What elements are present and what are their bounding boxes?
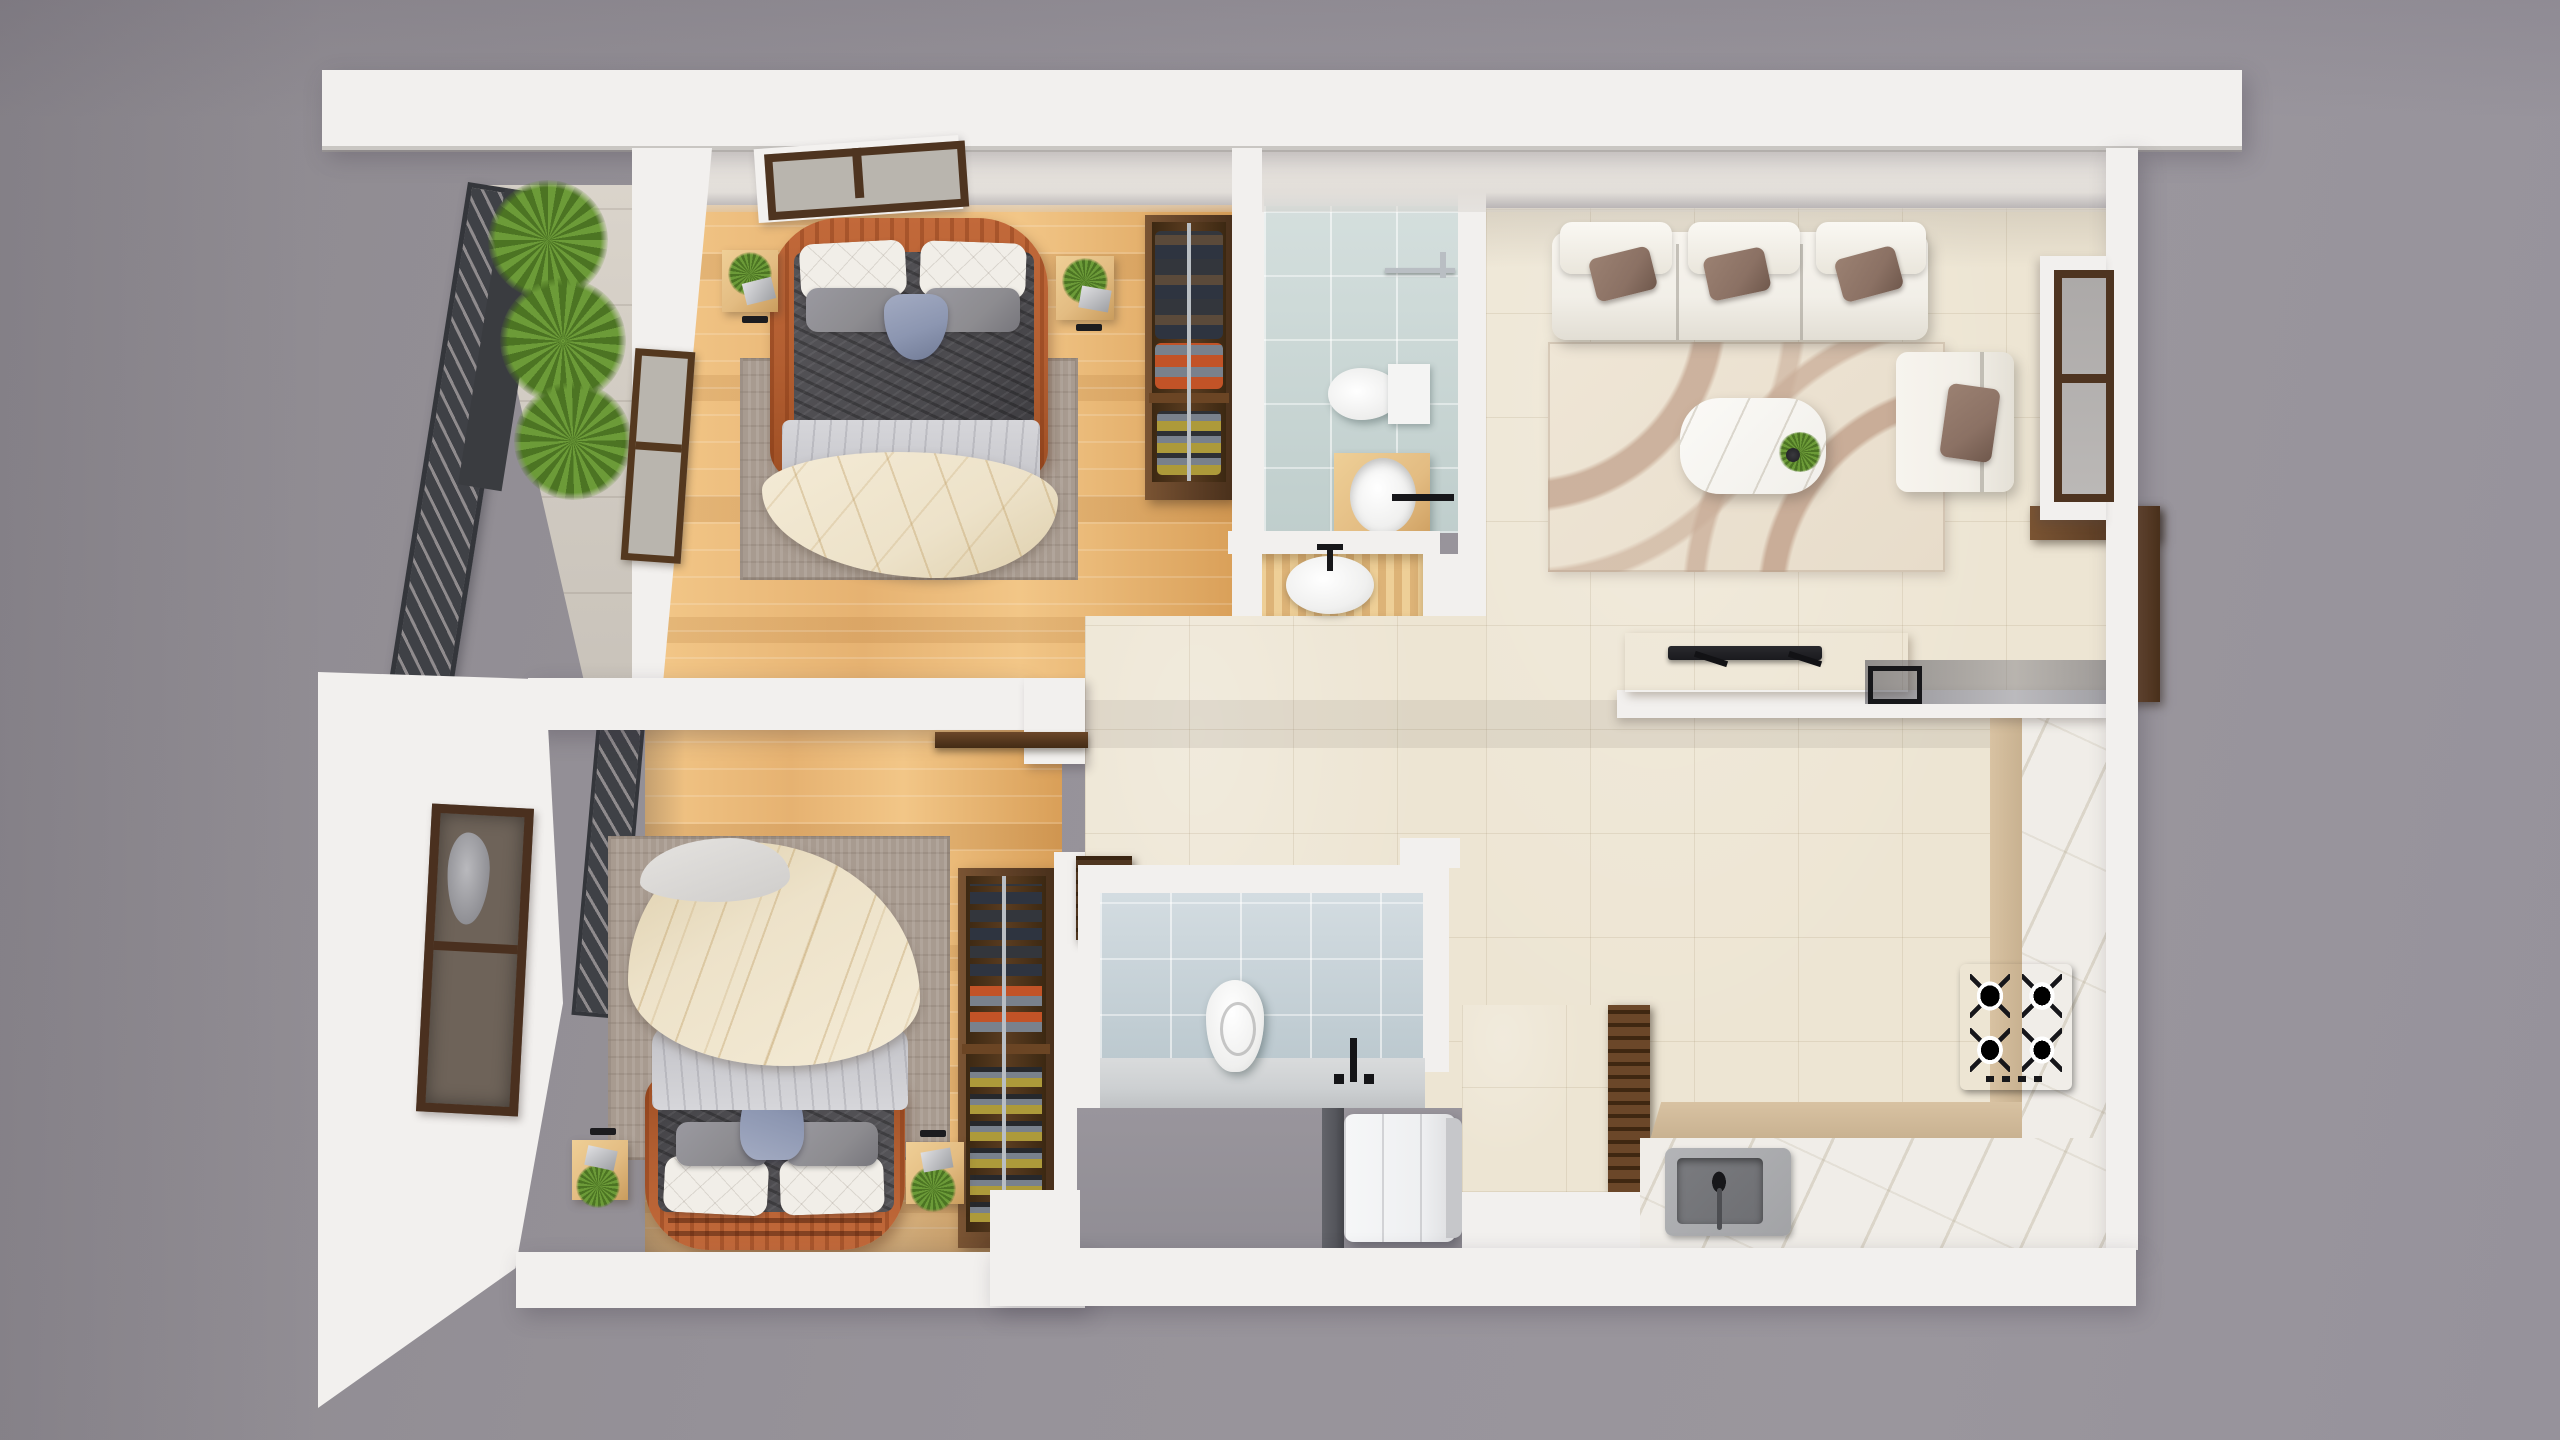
pantry-niche-floor <box>1462 1005 1608 1192</box>
wall-hook-icon <box>920 1130 946 1137</box>
right-window <box>2054 270 2114 502</box>
top-wall <box>322 70 2242 150</box>
bathroom-bottom-faucet-handles <box>1334 1074 1374 1084</box>
towel-hook-icon <box>1440 252 1446 278</box>
bathroom-bottom-counter <box>1100 1058 1425 1108</box>
bedroom-top-window-frame <box>764 141 969 221</box>
wall-hook-icon <box>1076 324 1102 331</box>
toilet-bottom-seat-line <box>1220 1002 1256 1056</box>
kitchen-faucet-hose <box>1717 1188 1722 1230</box>
right-window-rail <box>2062 374 2106 383</box>
west-window-chair-silhouette <box>445 831 492 925</box>
west-wall-window <box>416 804 534 1117</box>
nightstand-plant-icon <box>910 1166 956 1212</box>
west-window-rail <box>433 941 517 954</box>
niche-vanity-faucet-tee <box>1317 544 1343 550</box>
bathroom-bottom-left-wall <box>1078 865 1100 1112</box>
kitchen-cabinet-face-bottom <box>1650 1102 2022 1140</box>
kitchen-sink <box>1665 1148 1791 1236</box>
floor-plan-render <box>0 0 2560 1440</box>
entry-west-step <box>990 1190 1080 1250</box>
table-vase-icon <box>1786 448 1800 462</box>
washing-machine <box>1344 1114 1456 1242</box>
vanity-top-faucet-icon <box>1392 494 1454 501</box>
door-step-block <box>1024 678 1085 764</box>
inter-bedroom-wall <box>528 678 1024 730</box>
burner-icon <box>1970 974 2010 1018</box>
toilet-top-tank <box>1388 364 1430 424</box>
pantry-bottom-wall <box>1462 1192 1650 1252</box>
bathroom-bottom-top-step <box>1400 838 1460 868</box>
background-shade-left <box>0 0 330 1440</box>
top-wall-edge <box>322 146 2242 152</box>
bathroom-top-right-wall <box>1458 148 1486 616</box>
bedroom-top-east-wall <box>1232 148 1262 616</box>
bathroom-bottom <box>1078 852 1448 1112</box>
bathroom-bottom-top-wall <box>1097 865 1426 893</box>
shoe-shelf-divider <box>962 1044 1050 1054</box>
wardrobe-rail-icon <box>1187 223 1191 481</box>
cooktop-controls <box>1986 1076 2048 1082</box>
gas-cooktop <box>1960 964 2072 1090</box>
shoe-rack-rail-icon <box>1002 876 1006 1232</box>
shoe-rows-dark <box>970 884 1042 976</box>
wall-hook-icon <box>590 1128 616 1135</box>
burner-icon <box>2022 1028 2062 1072</box>
utility-door-panel <box>1322 1108 1344 1248</box>
burner-icon <box>1970 1028 2010 1072</box>
bathroom-bottom-right-wall <box>1423 865 1449 1072</box>
south-wall <box>990 1248 2136 1306</box>
wall-hook-icon <box>742 316 768 323</box>
table-plant-icon <box>1778 432 1822 472</box>
open-door-leaf <box>935 732 1088 748</box>
wardrobe-top <box>1145 215 1233 500</box>
shoe-rows-orange <box>970 980 1042 1032</box>
niche-right-wall <box>1423 554 1486 616</box>
balcony-door-rail <box>635 441 681 452</box>
bedroom-top-window <box>754 135 964 223</box>
lounge-chair-pillow <box>1939 383 2001 464</box>
burner-icon <box>2022 974 2062 1018</box>
bathroom-bottom-tile <box>1100 890 1425 1072</box>
entry-console-tray-icon <box>1868 666 1922 704</box>
washing-machine-side <box>1446 1118 1462 1238</box>
